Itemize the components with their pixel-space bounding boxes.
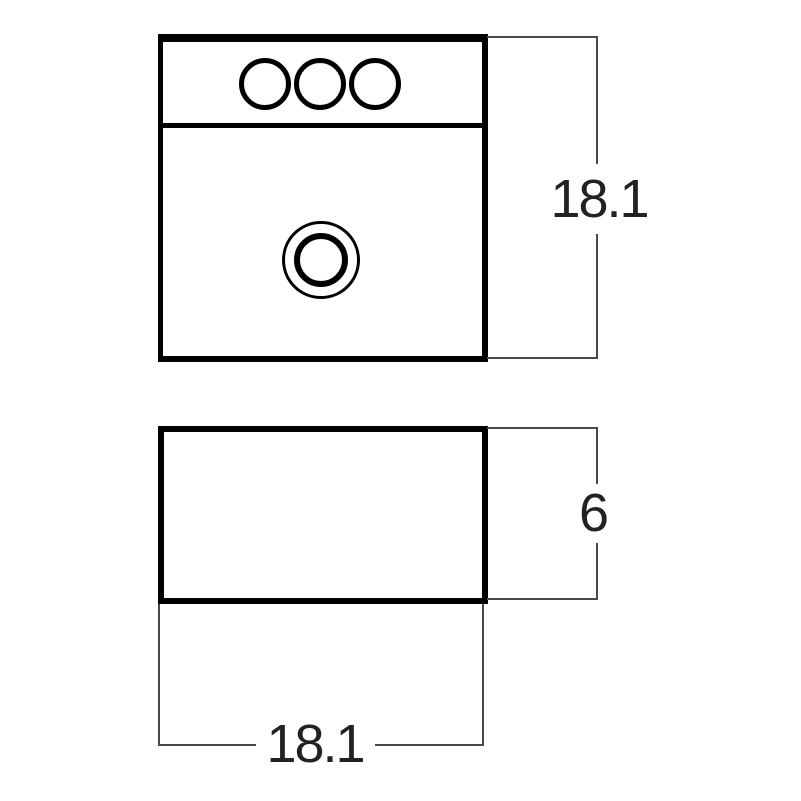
dimension-line — [596, 543, 598, 600]
dimension-extension-line — [487, 598, 598, 600]
dimension-extension-line — [482, 604, 484, 746]
top-view-height-dimension-label: 18.1 — [550, 172, 647, 226]
faucet-hole-icon — [239, 58, 291, 110]
dimension-extension-line — [487, 427, 598, 429]
dimension-line — [596, 427, 598, 484]
drain-inner-ring-icon — [294, 233, 348, 287]
dimension-extension-line — [487, 36, 598, 38]
faucet-deck-divider-line — [163, 123, 482, 128]
faucet-hole-icon — [294, 58, 346, 110]
dimension-extension-line — [158, 604, 160, 746]
faucet-hole-icon — [349, 58, 401, 110]
dimension-line — [159, 744, 256, 746]
front-view-outline — [158, 426, 488, 604]
front-view-height-dimension-label: 6 — [579, 486, 607, 540]
dimension-extension-line — [487, 357, 598, 359]
dimension-line — [596, 234, 598, 359]
diagram-canvas: 18.1 6 18.1 — [0, 0, 801, 801]
dimension-line — [375, 744, 483, 746]
front-view-width-dimension-label: 18.1 — [266, 717, 363, 771]
dimension-line — [596, 36, 598, 164]
